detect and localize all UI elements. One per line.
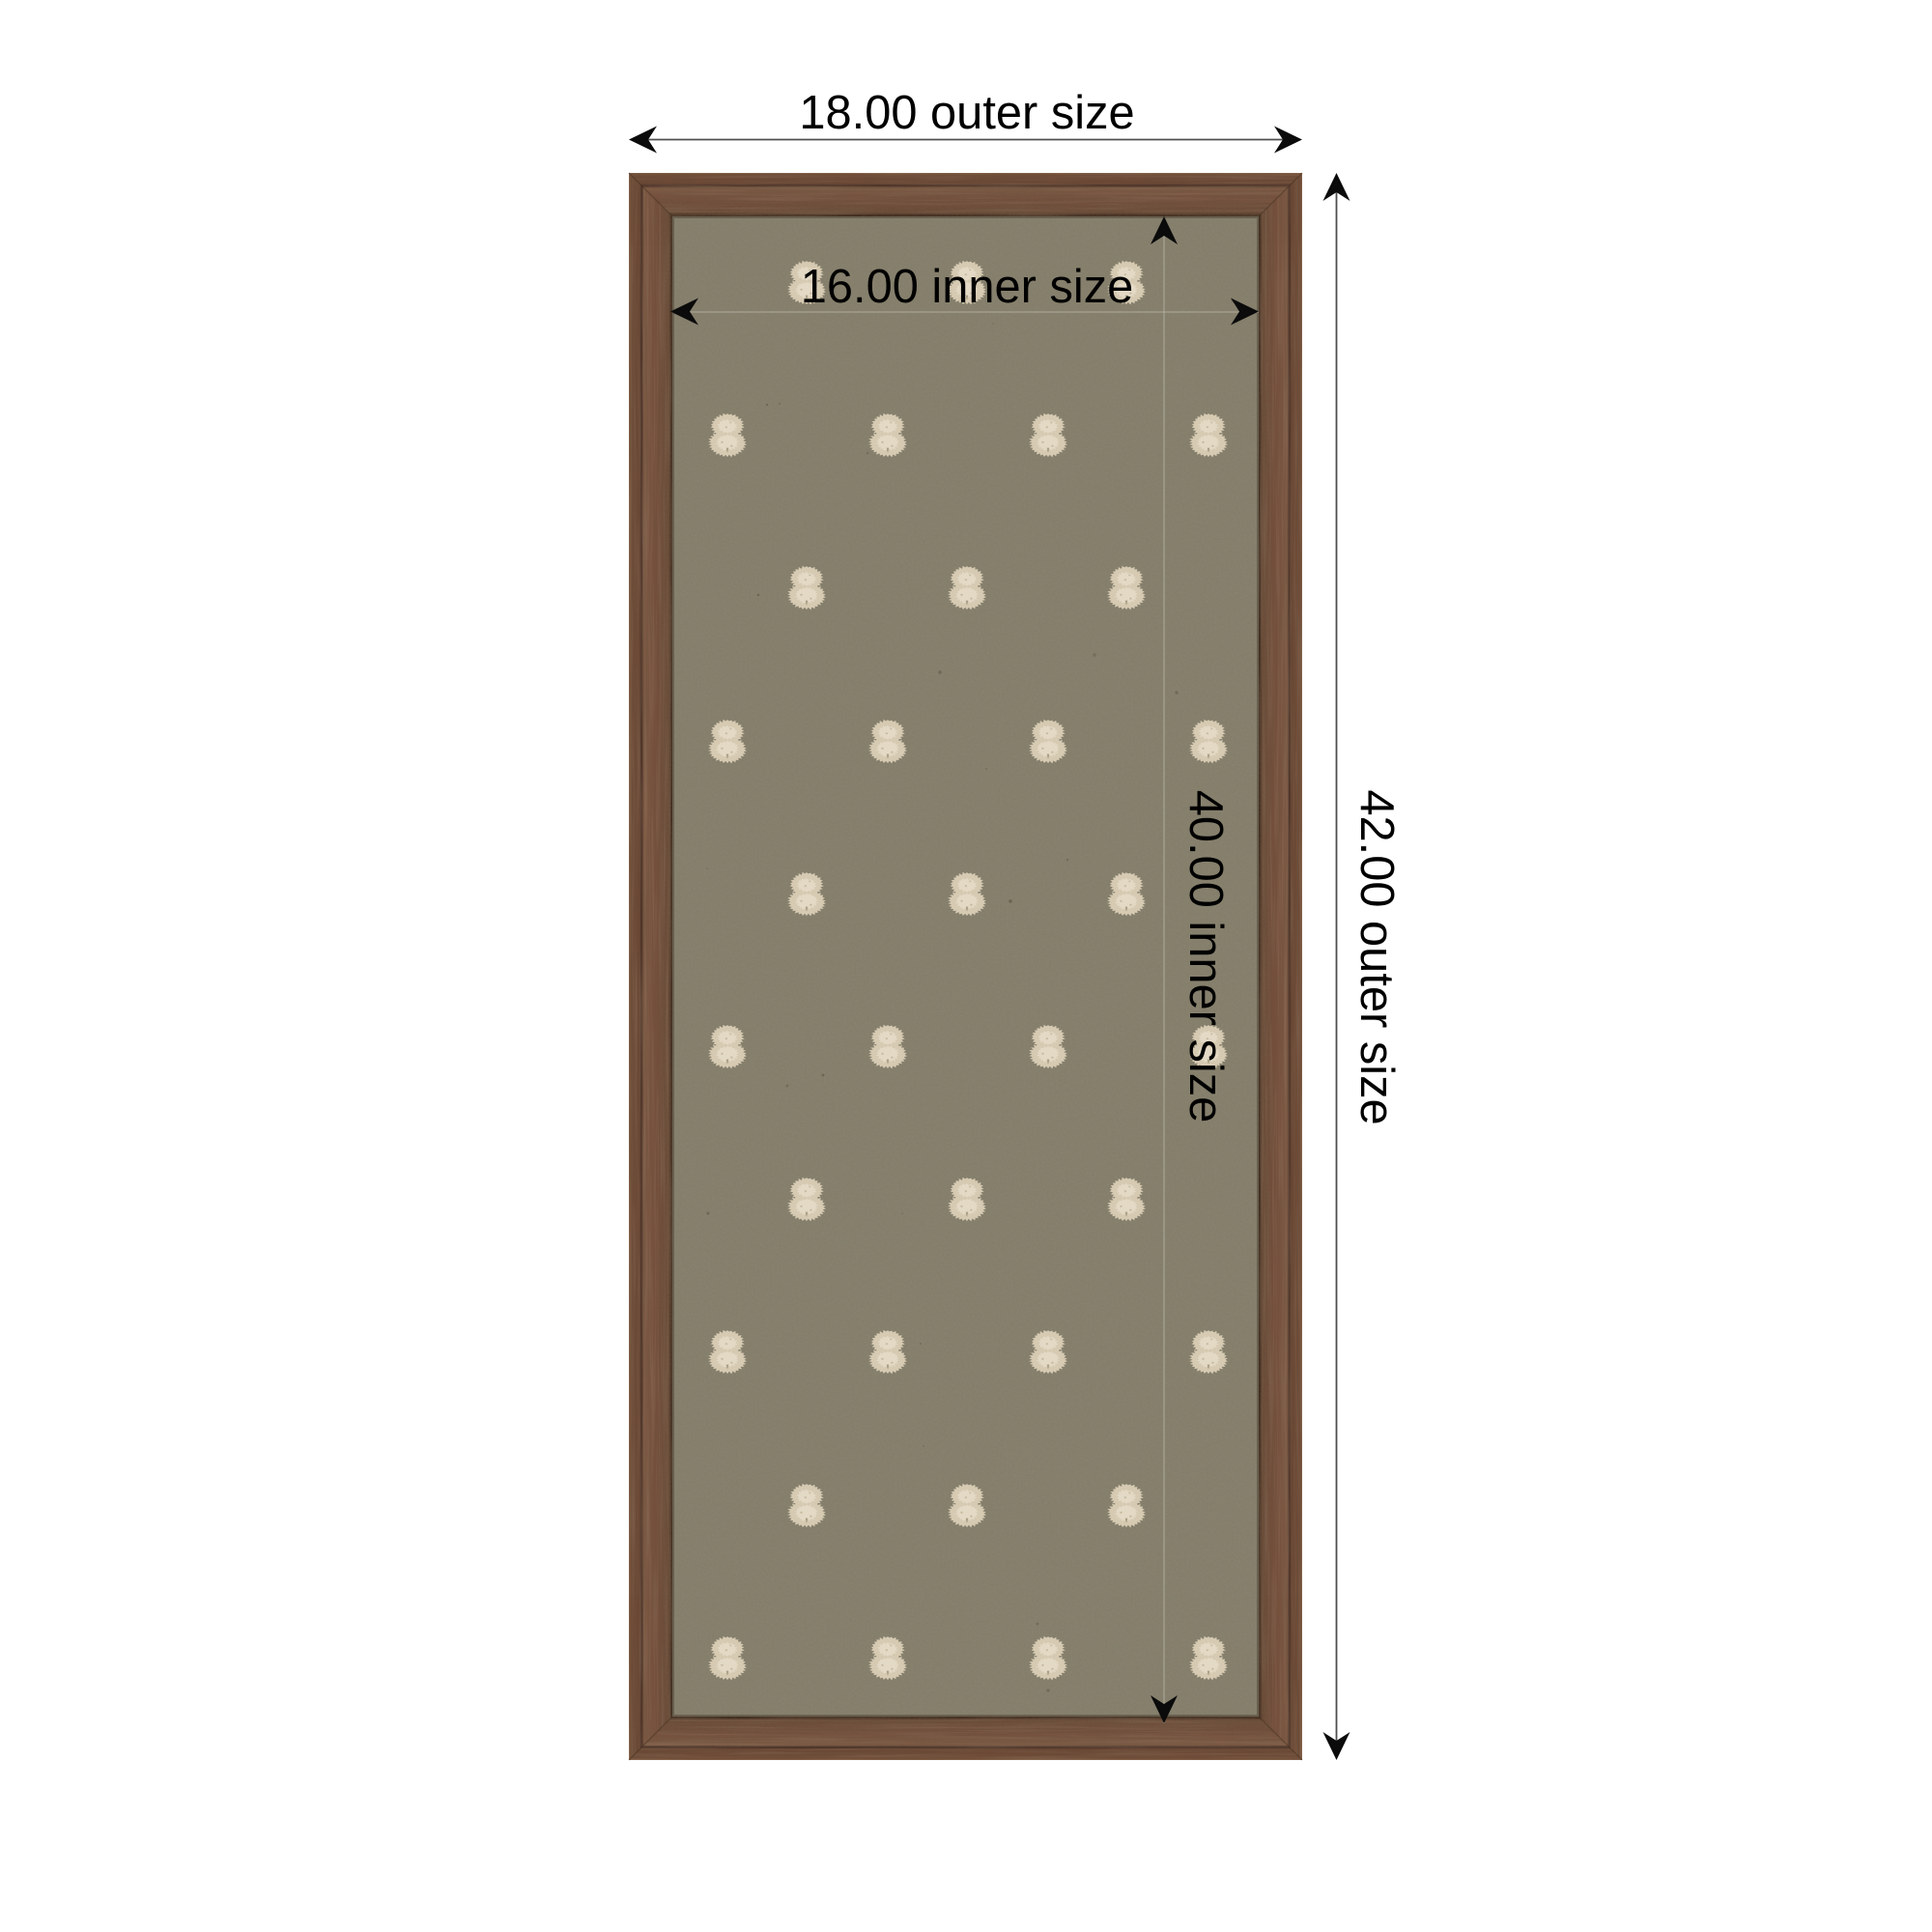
- svg-text:40.00 inner size: 40.00 inner size: [1179, 790, 1232, 1123]
- svg-text:18.00 outer size: 18.00 outer size: [799, 87, 1134, 139]
- svg-text:42.00 outer size: 42.00 outer size: [1350, 789, 1403, 1124]
- svg-text:16.00 inner size: 16.00 inner size: [801, 261, 1134, 313]
